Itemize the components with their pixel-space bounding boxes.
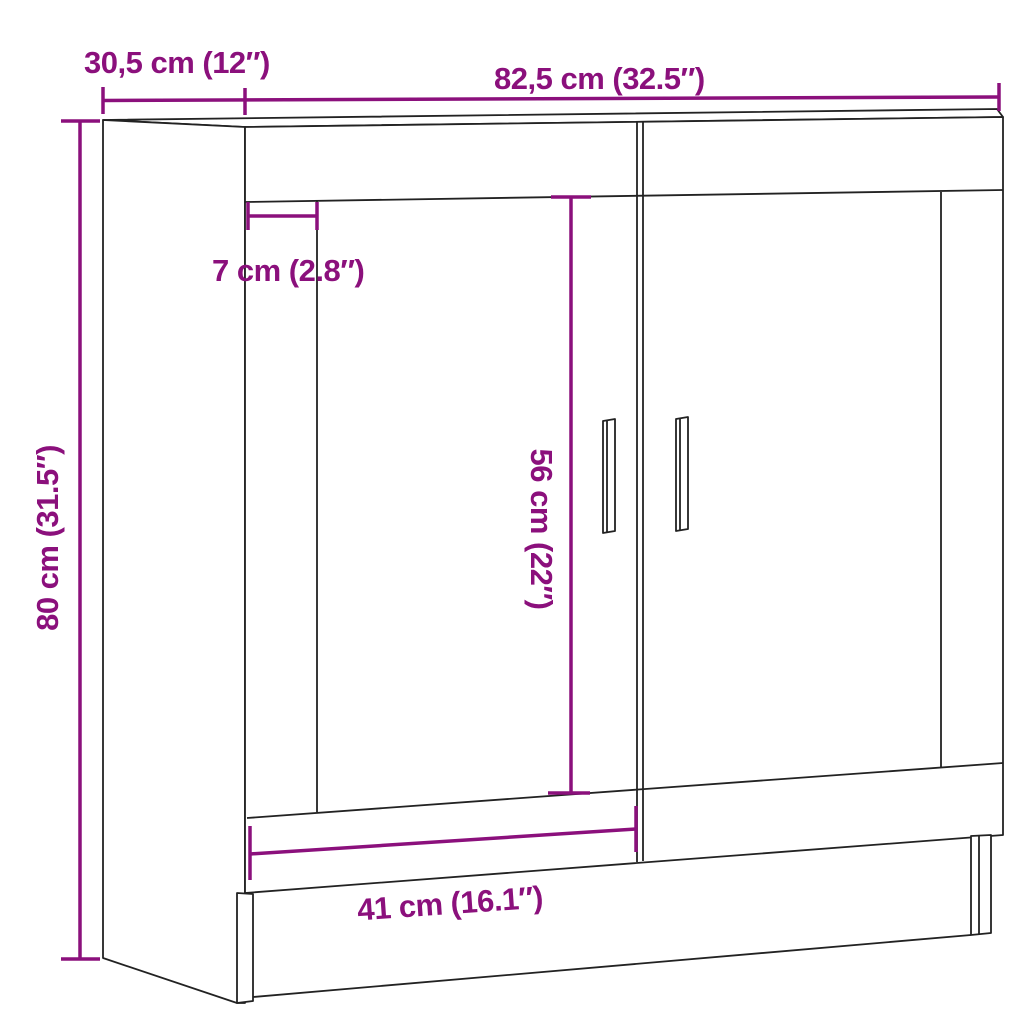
cabinet-line-drawing	[0, 0, 1024, 1024]
plinth-bottom-line	[253, 935, 971, 997]
width-dimension-label: 82,5 cm (32.5″)	[494, 61, 705, 97]
door-height-dimension-label: 56 cm (22″)	[522, 424, 560, 634]
left-front-leg	[237, 893, 253, 1003]
height-dimension-label: 80 cm (31.5″)	[29, 423, 67, 653]
right-front-leg	[971, 835, 991, 935]
depth-dimension-label: 30,5 cm (12″)	[84, 45, 270, 81]
furniture-dimension-diagram: 30,5 cm (12″) 82,5 cm (32.5″) 7 cm (2.8″…	[0, 0, 1024, 1024]
cabinet-front-face	[245, 117, 1003, 893]
right-door-handle	[676, 417, 688, 531]
frame-inset-dimension-label: 7 cm (2.8″)	[212, 253, 364, 289]
left-door-handle	[603, 419, 615, 533]
